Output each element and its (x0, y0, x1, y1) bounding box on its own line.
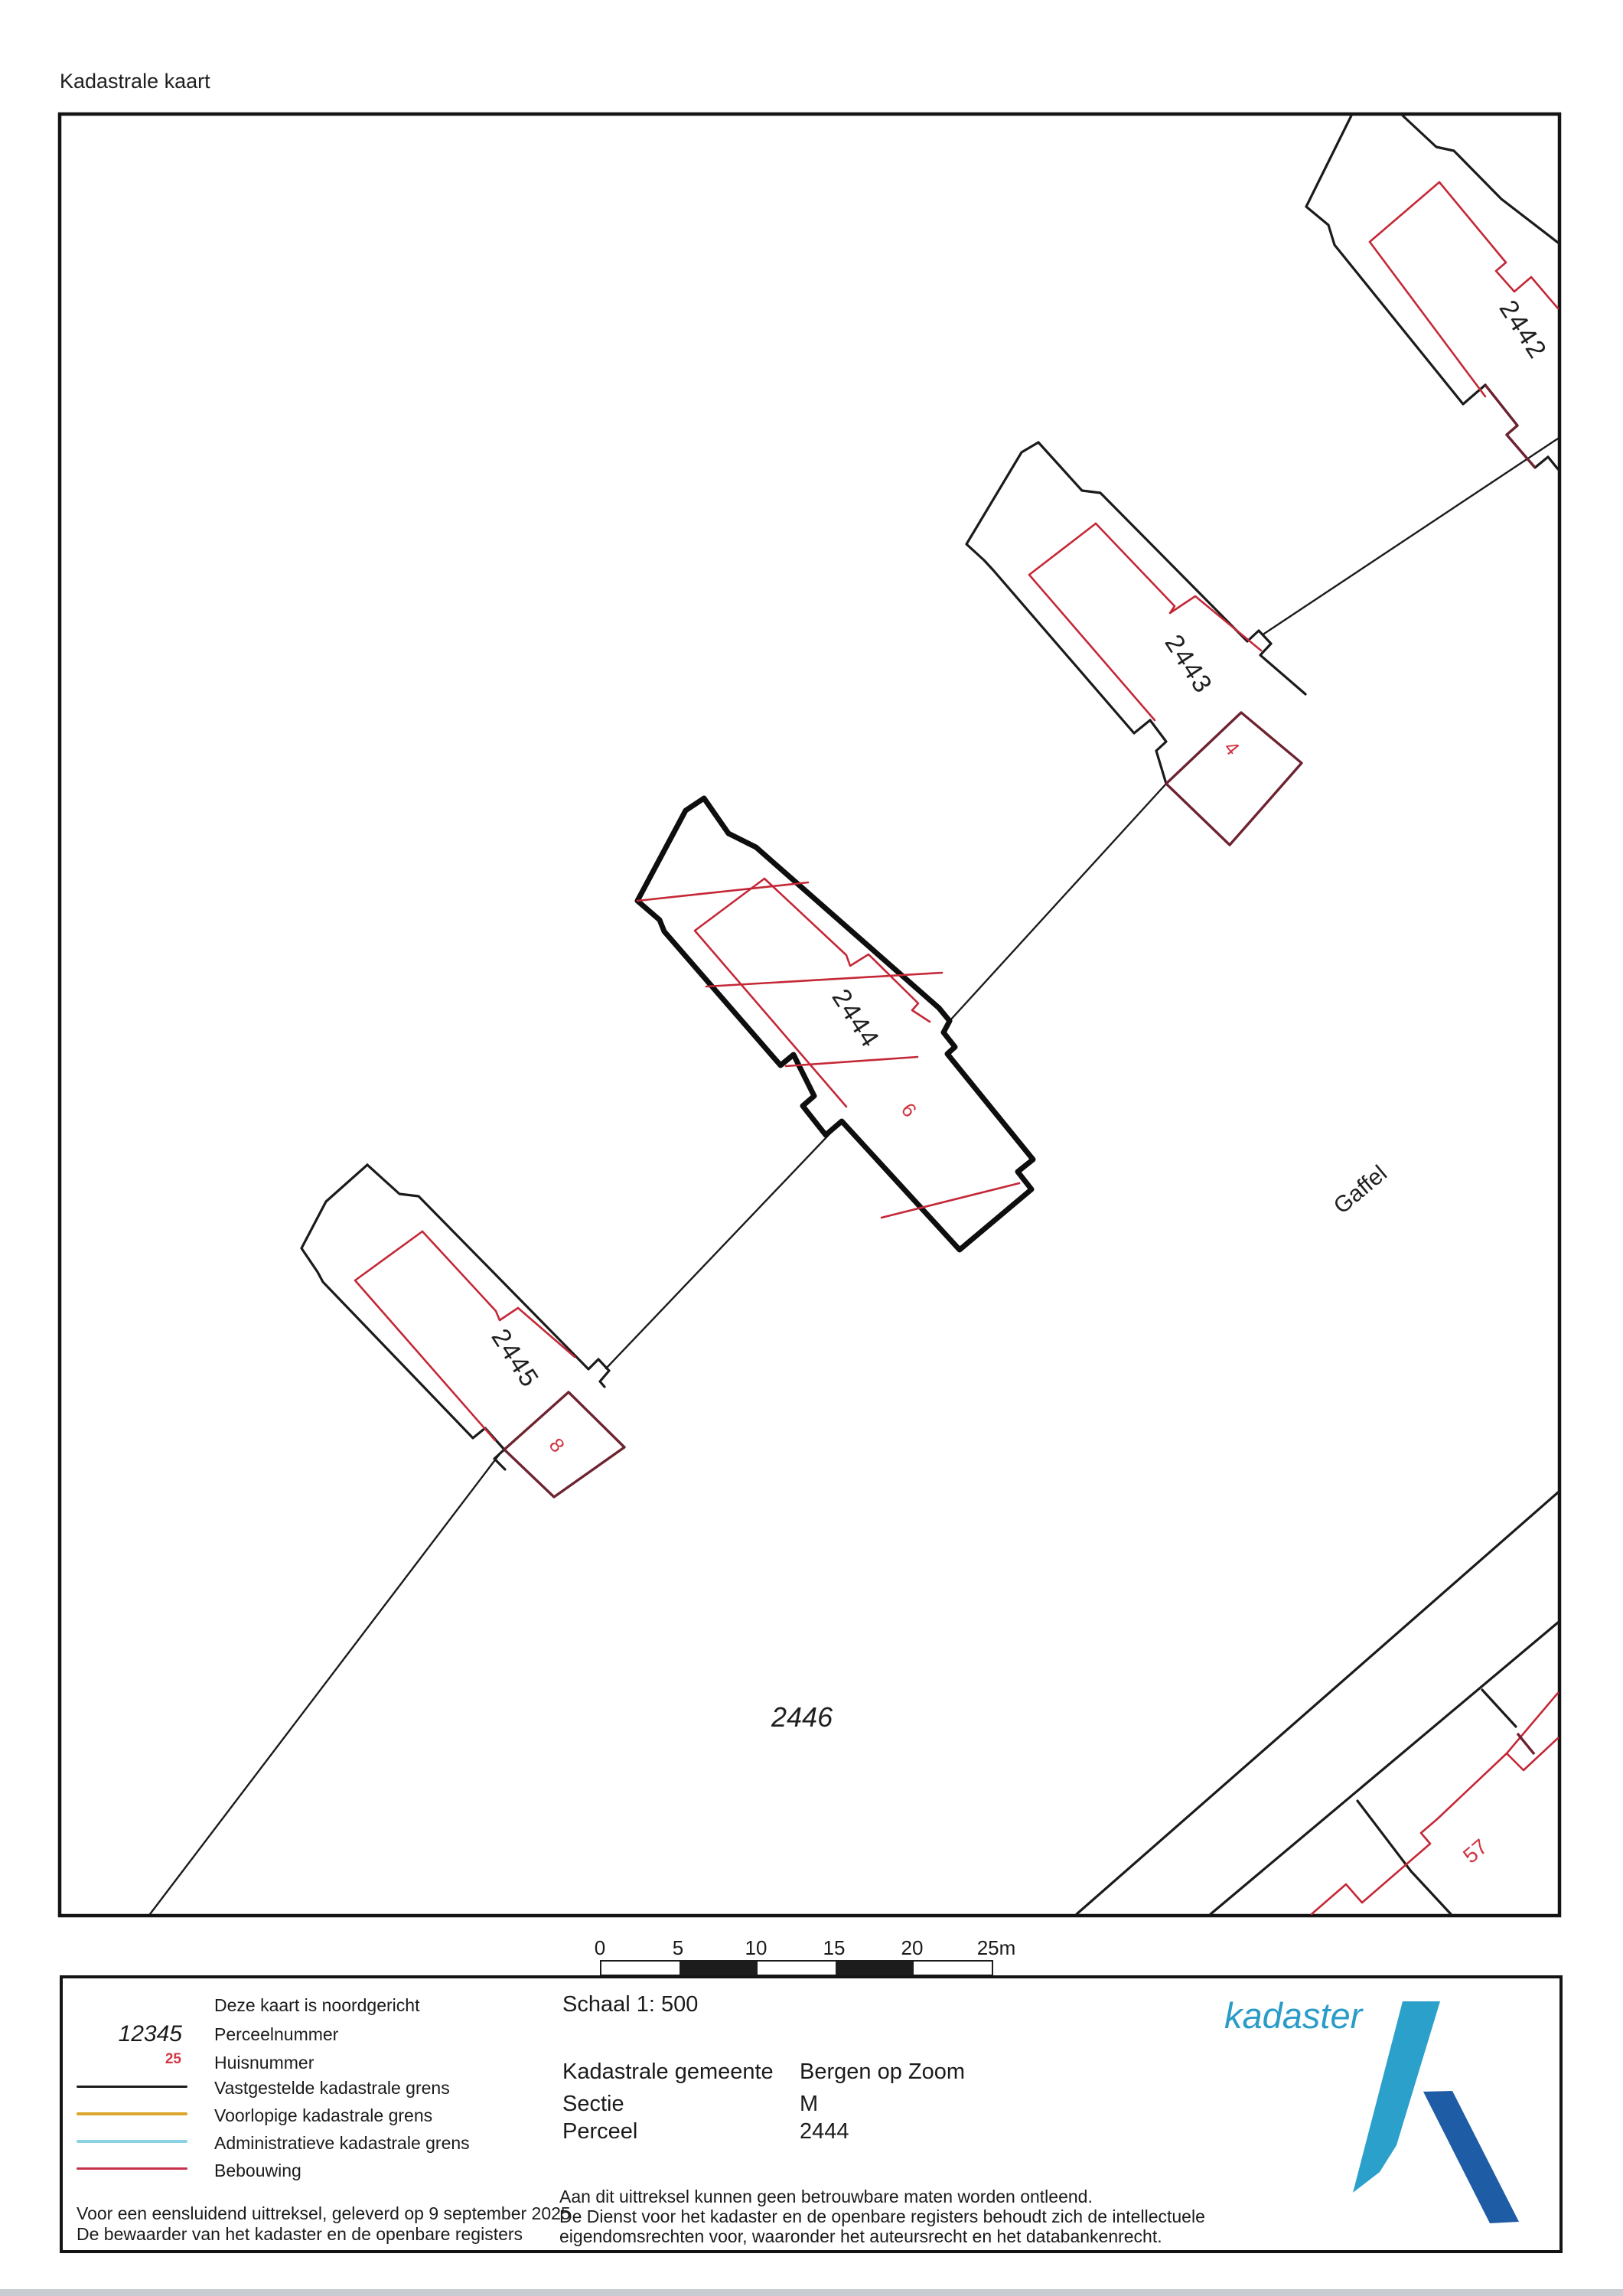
map-frame (60, 114, 1559, 1916)
scale-label: Schaal 1: 500 (562, 1993, 698, 2017)
scale-bar-segments (600, 1960, 993, 1976)
legend-label-vastgesteld: Vastgestelde kadastrale grens (214, 2079, 450, 2098)
kadaster-logo-stroke-icon (1423, 2091, 1519, 2223)
legend-line-voorlopig (77, 2112, 187, 2115)
scale-tick-15: 15 (823, 1936, 846, 1960)
disclaimer-line2: De Dienst voor het kadaster en de openba… (559, 2207, 1205, 2226)
legend-line-vastgesteld (77, 2086, 187, 2088)
scale-tick-25m: 25m (977, 1936, 1016, 1960)
legend-sample-house-number: 25 (67, 2052, 181, 2068)
scale-segment (680, 1962, 758, 1975)
legend-footer-line1: Voor een eensluidend uittreksel, gelever… (77, 2204, 571, 2223)
scale-tick-5: 5 (673, 1936, 683, 1960)
info-value-sectie: M (800, 2092, 818, 2117)
scan-edge-artifact (0, 2289, 1623, 2296)
scale-segment (758, 1962, 836, 1975)
scale-tick-0: 0 (595, 1936, 605, 1960)
info-label-sectie: Sectie (562, 2092, 624, 2117)
north-note: Deze kaart is noordgericht (214, 1996, 419, 2015)
legend-line-administratief (77, 2140, 187, 2143)
legend-label-huisnummer: Huisnummer (214, 2053, 314, 2073)
kadaster-logo: kadaster (1217, 1986, 1538, 2239)
parcel-label-2446: 2446 (771, 1701, 833, 1733)
legend-label-perceelnummer: Perceelnummer (214, 2025, 338, 2044)
legend-label-bebouwing: Bebouwing (214, 2161, 301, 2180)
scale-segment (601, 1962, 680, 1975)
scale-tick-10: 10 (745, 1936, 768, 1960)
disclaimer-line3: eigendomsrechten voor, waaronder het aut… (559, 2227, 1162, 2246)
info-value-perceel: 2444 (800, 2120, 849, 2144)
info-label-perceel: Perceel (562, 2120, 637, 2144)
legend-line-bebouwing (77, 2167, 187, 2170)
scale-tick-20: 20 (901, 1936, 924, 1960)
legend-label-administratief: Administratieve kadastrale grens (214, 2134, 470, 2153)
legend-footer-line2: De bewaarder van het kadaster en de open… (77, 2225, 523, 2244)
kadaster-logo-text: kadaster (1224, 1995, 1364, 2036)
scale-segment (914, 1962, 992, 1975)
disclaimer-line1: Aan dit uittreksel kunnen geen betrouwba… (559, 2187, 1093, 2206)
info-value-gemeente: Bergen op Zoom (800, 2060, 965, 2085)
legend-sample-parcel-number: 12345 (67, 2021, 182, 2047)
scale-segment (836, 1962, 914, 1975)
cadastral-map: 2442 2443 2444 2445 2446 Gaffel 4 6 8 57 (0, 0, 1623, 2296)
legend-label-voorlopig: Voorlopige kadastrale grens (214, 2106, 432, 2125)
info-label-gemeente: Kadastrale gemeente (562, 2060, 774, 2085)
